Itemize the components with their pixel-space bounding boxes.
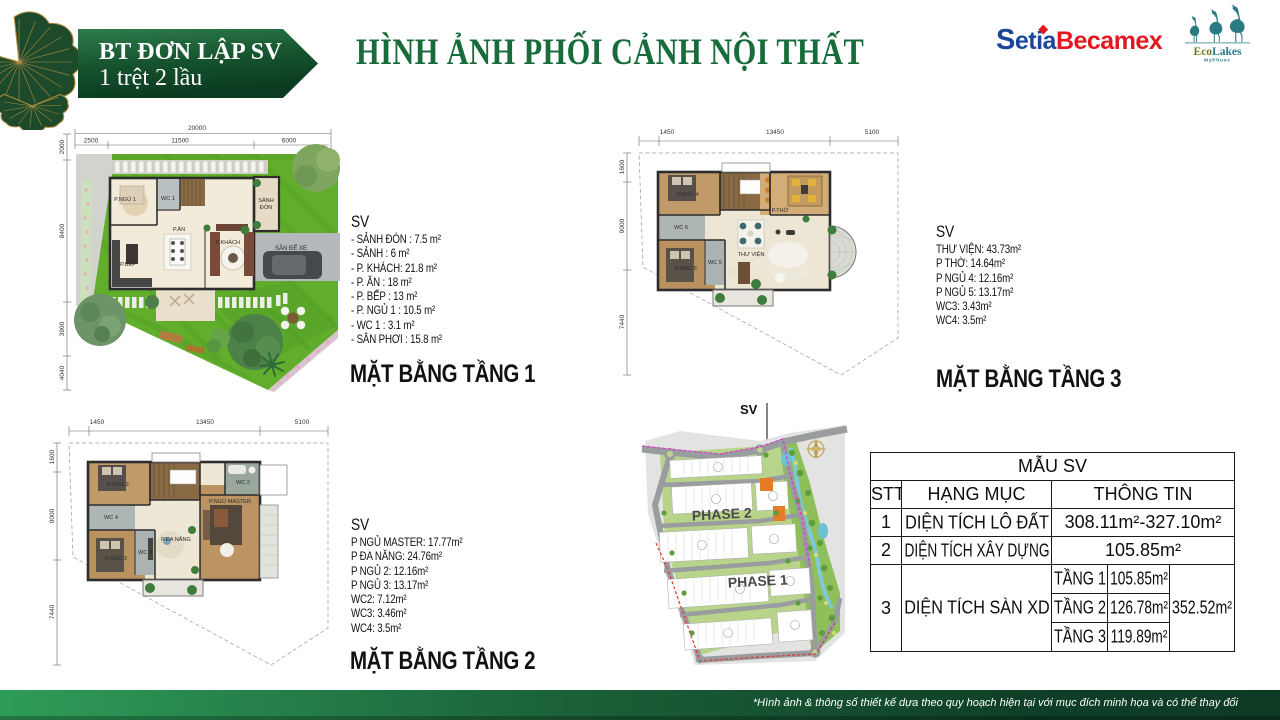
svg-text:9000: 9000	[49, 508, 56, 523]
svg-text:P.KHÁCH: P.KHÁCH	[216, 239, 240, 246]
svg-text:3900: 3900	[59, 321, 66, 336]
svg-text:1450: 1450	[90, 419, 105, 426]
svg-text:P.ĂN: P.ĂN	[173, 226, 185, 233]
svg-text:WC 2: WC 2	[236, 480, 250, 486]
svg-text:P.NGỦ 4: P.NGỦ 4	[677, 191, 699, 198]
svg-text:1600: 1600	[619, 159, 626, 174]
svg-text:P.NGỦ 5: P.NGỦ 5	[675, 265, 697, 272]
svg-text:SV: SV	[740, 402, 758, 417]
svg-text:MyPhuoc: MyPhuoc	[1204, 58, 1231, 64]
svg-text:20000: 20000	[188, 125, 206, 132]
svg-text:THƯ VIỆN: THƯ VIỆN	[738, 250, 765, 258]
svg-text:WC 4: WC 4	[104, 515, 118, 521]
svg-text:SÂN ĐỂ XE: SÂN ĐỂ XE	[275, 245, 307, 252]
svg-text:P.NGỦ 2: P.NGỦ 2	[107, 481, 129, 488]
svg-text:WC 1: WC 1	[161, 196, 175, 202]
svg-text:5100: 5100	[865, 129, 880, 136]
svg-text:7440: 7440	[619, 314, 626, 329]
svg-text:WC 5: WC 5	[708, 260, 722, 266]
svg-text:WC 6: WC 6	[674, 225, 688, 231]
svg-text:7440: 7440	[49, 604, 56, 619]
svg-text:5100: 5100	[295, 419, 310, 426]
svg-text:11500: 11500	[171, 138, 189, 145]
svg-text:4040: 4040	[59, 365, 66, 380]
svg-text:ĐÓN: ĐÓN	[260, 204, 272, 211]
svg-text:P.BẾP: P.BẾP	[120, 261, 136, 268]
svg-text:1600: 1600	[49, 449, 56, 464]
svg-text:2500: 2500	[84, 138, 99, 145]
svg-text:WC 3: WC 3	[138, 550, 152, 556]
svg-text:13450: 13450	[766, 129, 784, 136]
svg-text:13450: 13450	[196, 419, 214, 426]
svg-text:1450: 1450	[660, 129, 675, 136]
svg-text:P.NGỦ MASTER: P.NGỦ MASTER	[209, 498, 251, 505]
svg-text:9000: 9000	[619, 218, 626, 233]
svg-text:6000: 6000	[282, 138, 297, 145]
svg-text:EcoLakes: EcoLakes	[1194, 46, 1242, 58]
svg-text:PHASE 1: PHASE 1	[727, 571, 788, 590]
svg-text:SẢNH: SẢNH	[258, 197, 274, 204]
svg-text:P.ĐA NĂNG: P.ĐA NĂNG	[161, 536, 191, 543]
svg-text:2000: 2000	[59, 139, 66, 154]
svg-text:P.NGỦ 1: P.NGỦ 1	[114, 196, 136, 203]
svg-text:P.NGỦ 3: P.NGỦ 3	[105, 555, 127, 562]
svg-text:PHASE 2: PHASE 2	[691, 504, 752, 523]
svg-text:8400: 8400	[59, 223, 66, 238]
svg-text:P.THỜ: P.THỜ	[772, 207, 789, 214]
